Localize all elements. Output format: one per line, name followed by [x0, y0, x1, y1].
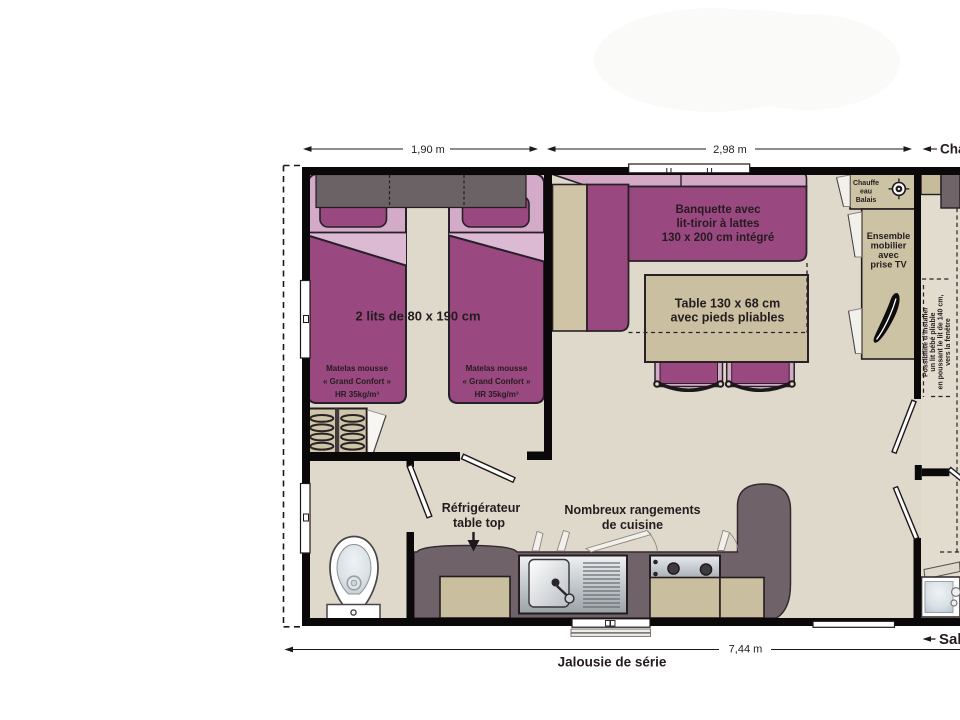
svg-text:130 x 200 cm intégré: 130 x 200 cm intégré: [662, 232, 775, 244]
svg-text:Matelas mousse: Matelas mousse: [326, 364, 388, 373]
svg-text:table top: table top: [453, 516, 505, 530]
svg-text:de cuisine: de cuisine: [602, 518, 663, 532]
svg-text:Jalousie de série: Jalousie de série: [558, 655, 667, 670]
svg-text:2 lits de 80 x 190 cm: 2 lits de 80 x 190 cm: [355, 309, 480, 324]
svg-text:prise TV: prise TV: [870, 260, 907, 270]
svg-text:« Grand Confort »: « Grand Confort »: [462, 377, 531, 386]
svg-text:Table 130 x 68 cm: Table 130 x 68 cm: [675, 297, 780, 311]
svg-text:Chambre: Chambre: [940, 142, 960, 157]
svg-text:vers la fenêtre: vers la fenêtre: [945, 318, 952, 366]
svg-text:Salle d’eau: Salle d’eau: [939, 631, 960, 648]
svg-text:mobilier: mobilier: [871, 241, 907, 251]
svg-text:2,98 m: 2,98 m: [713, 144, 747, 156]
svg-text:eau: eau: [860, 189, 872, 196]
svg-text:avec pieds pliables: avec pieds pliables: [671, 311, 785, 325]
svg-text:en poussant le lit de 140 cm,: en poussant le lit de 140 cm,: [938, 294, 945, 389]
svg-text:Réfrigérateur: Réfrigérateur: [442, 501, 521, 515]
svg-text:« Grand Confort »: « Grand Confort »: [323, 377, 392, 386]
svg-text:Balais: Balais: [856, 197, 877, 204]
svg-text:HR 35kg/m³: HR 35kg/m³: [335, 390, 379, 399]
svg-text:Banquette avec: Banquette avec: [675, 204, 761, 216]
svg-text:HR 35kg/m³: HR 35kg/m³: [474, 390, 518, 399]
svg-text:Possibilité d’installer: Possibilité d’installer: [923, 307, 930, 377]
svg-text:lit-tiroir à lattes: lit-tiroir à lattes: [676, 218, 759, 230]
svg-text:avec: avec: [878, 250, 898, 260]
svg-text:Ensemble: Ensemble: [867, 231, 910, 241]
svg-text:Nombreux rangements: Nombreux rangements: [564, 503, 700, 517]
svg-text:1,90 m: 1,90 m: [411, 144, 445, 156]
svg-text:Matelas mousse: Matelas mousse: [466, 364, 528, 373]
svg-text:7,44 m: 7,44 m: [729, 644, 763, 656]
svg-text:Chauffe: Chauffe: [853, 180, 879, 187]
svg-text:un lit bébé pliable: un lit bébé pliable: [930, 312, 937, 371]
